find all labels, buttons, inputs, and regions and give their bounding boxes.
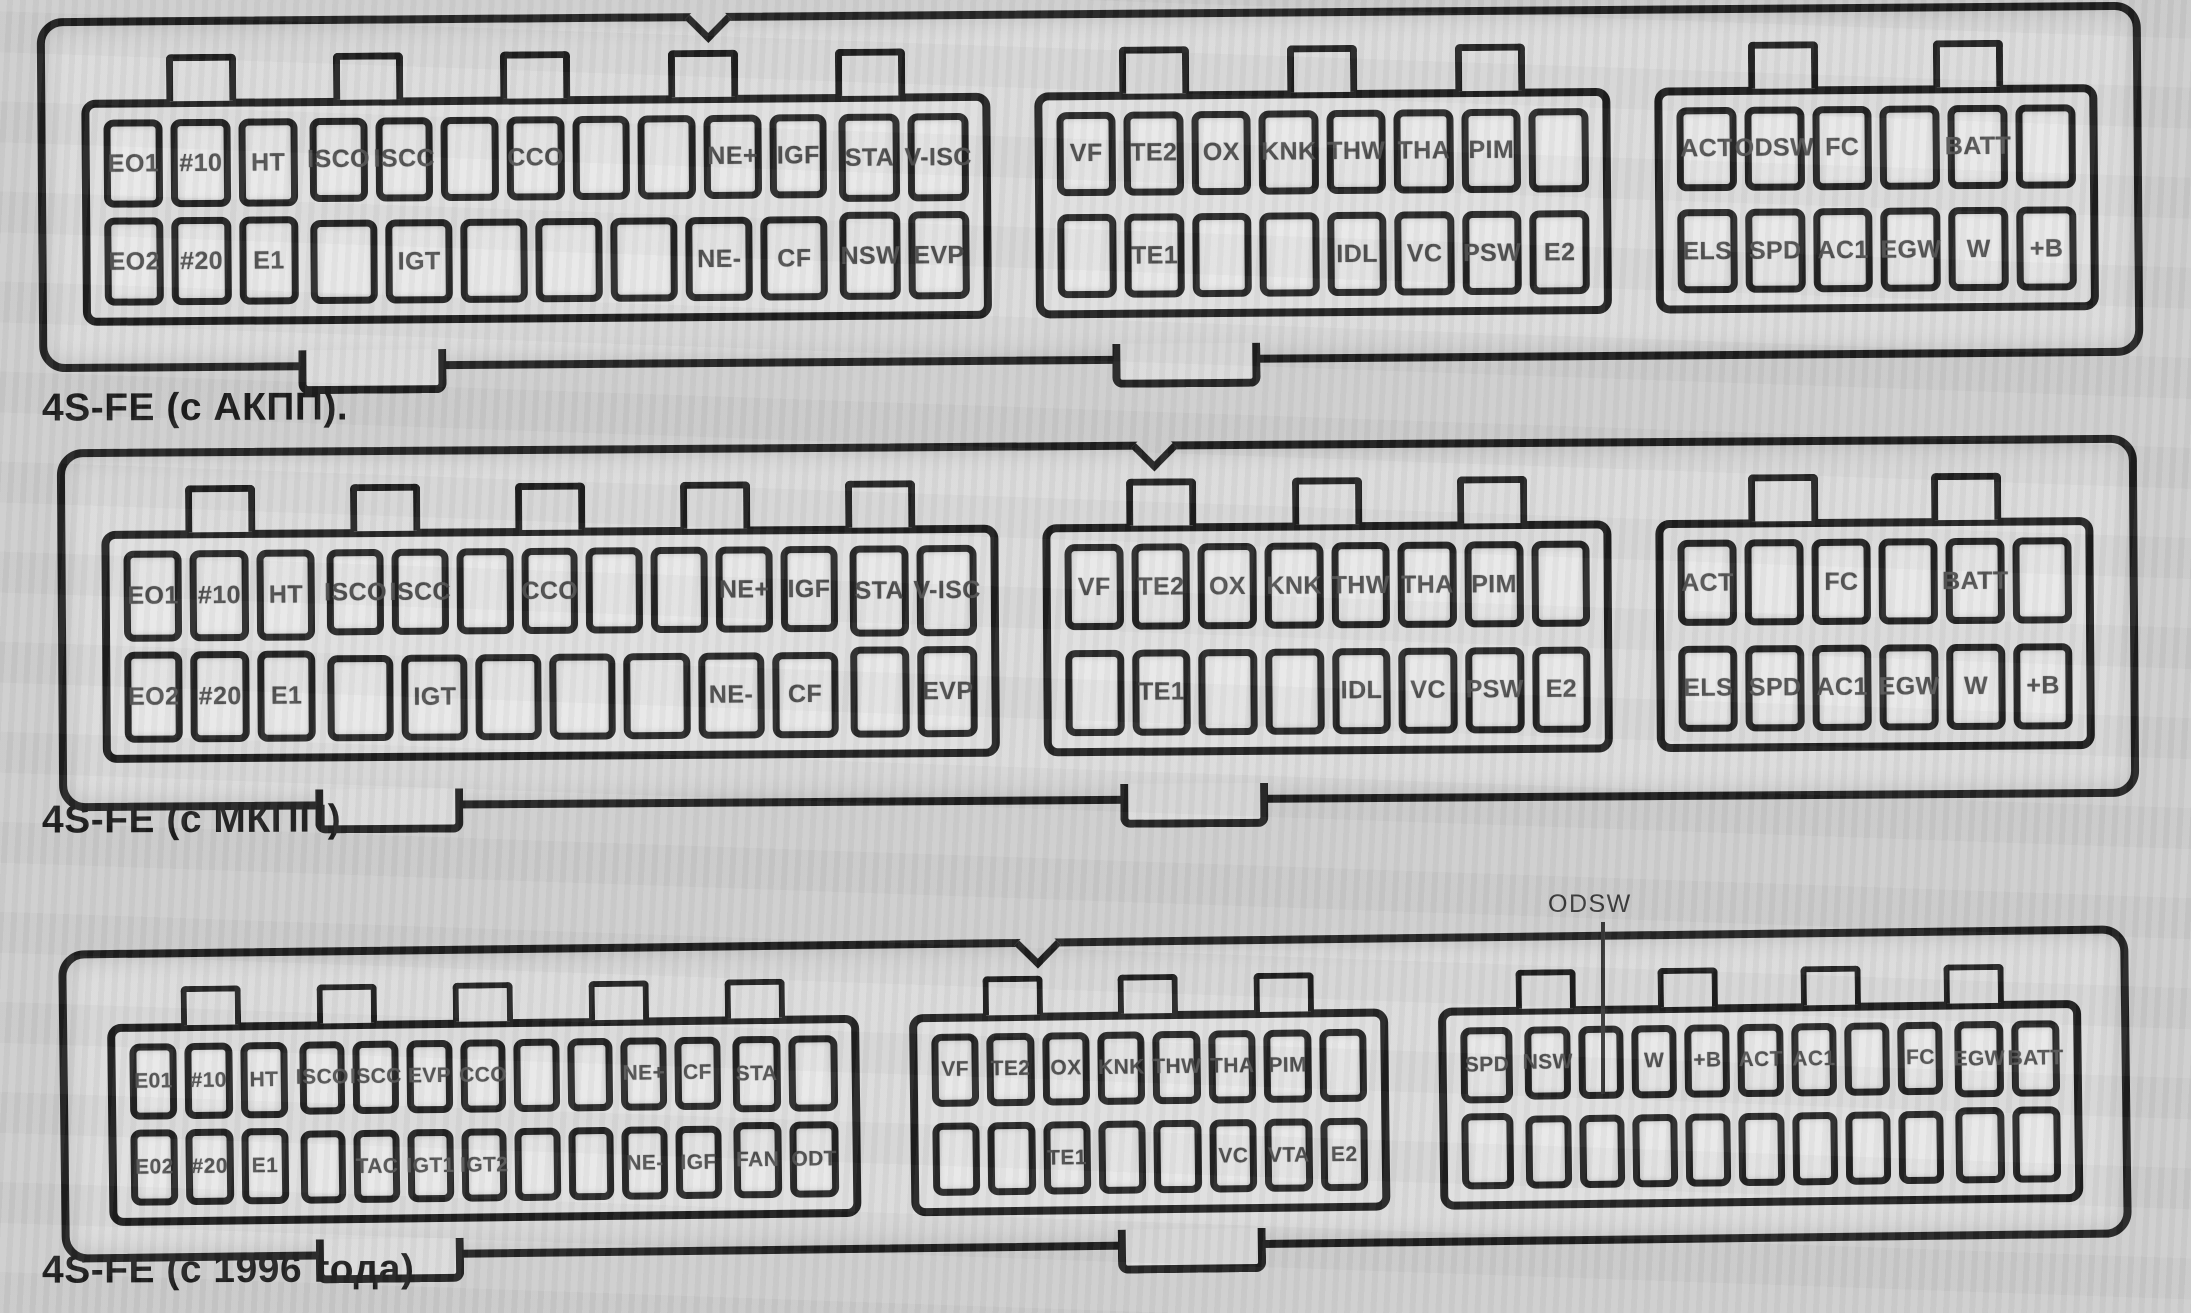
pin-label: TE2 <box>991 1057 1031 1081</box>
key-tab <box>588 980 648 1020</box>
pin-label: NSW <box>1522 1051 1572 1076</box>
pin-label: W <box>1644 1049 1665 1073</box>
pin-label: IGT1 <box>406 1153 455 1178</box>
pin-cell-ne: NE- <box>622 1126 668 1199</box>
pin-label: E2 <box>1331 1142 1358 1166</box>
pin-column: #10#20 <box>185 1043 234 1206</box>
pin-cell-blank <box>1844 1022 1890 1095</box>
pin-label: +B <box>1693 1049 1722 1073</box>
pin-row-top: VFTE2OXKNKTHWTHAPIM <box>931 1029 1367 1107</box>
pin-row-group: ISCOISCCEVPCCONE+CFTACIGT1IGT2NE-IGF <box>299 1037 722 1204</box>
pin-cell-blank <box>1154 1120 1202 1193</box>
pin-cell-ht: HT <box>240 1042 288 1119</box>
pin-label: E1 <box>252 1154 279 1178</box>
pin-cell-ac1: AC1 <box>1791 1023 1837 1096</box>
pin-label: TAC <box>355 1154 398 1179</box>
key-tab <box>317 984 377 1024</box>
pin-label: #10 <box>190 1069 227 1093</box>
pin-cell-w: W <box>1631 1025 1677 1098</box>
pin-cell-vc: VC <box>1209 1119 1257 1192</box>
pin-label: ISCC <box>350 1065 402 1090</box>
pin-cell-iscc: ISCC <box>353 1041 399 1114</box>
diagram-4sfe-1996: E01E02#10#20HTE1ISCOISCCEVPCCONE+CFTACIG… <box>0 0 2191 1313</box>
key-tab <box>1943 964 2003 1004</box>
pin-cell-evp: EVP <box>406 1040 452 1113</box>
pin-cell-igt2: IGT2 <box>461 1128 507 1201</box>
pin-cell-blank <box>1845 1111 1891 1184</box>
pin-label: EGW <box>1953 1047 2005 1072</box>
pin-cell-spd: SPD <box>1460 1027 1513 1104</box>
key-tab <box>1118 974 1178 1014</box>
pin-cell-b: +B <box>1684 1024 1730 1097</box>
key-tab <box>181 985 241 1025</box>
pin-column: ODT <box>788 1035 839 1198</box>
connector-block-middle: VFTE2OXKNKTHWTHAPIMTE1VCVTAE2 <box>909 1008 1391 1216</box>
key-tab <box>724 979 784 1019</box>
pin-label: ODT <box>791 1147 837 1172</box>
pin-cell-blank <box>1898 1111 1944 1184</box>
pin-cell-blank <box>515 1128 561 1201</box>
pin-cell-blank <box>1319 1029 1367 1102</box>
key-tab <box>1254 972 1314 1012</box>
pin-cell-e02: E02 <box>130 1129 178 1206</box>
pin-cell-tac: TAC <box>354 1130 400 1203</box>
pin-column: E01E02 <box>129 1043 178 1206</box>
pin-cell-isco: ISCO <box>299 1041 345 1114</box>
pin-column: EGW <box>1955 1021 2005 1184</box>
pin-cell-blank <box>1461 1113 1514 1190</box>
pin-cell-te2: TE2 <box>986 1033 1034 1106</box>
pin-cell-vf: VF <box>931 1033 979 1106</box>
pin-label: VF <box>941 1058 969 1082</box>
pin-column: HTE1 <box>240 1042 289 1205</box>
pin-cell-nsw: NSW <box>1525 1026 1571 1099</box>
pin-label: EVP <box>408 1064 452 1089</box>
connector-block-left: E01E02#10#20HTE1ISCOISCCEVPCCONE+CFTACIG… <box>107 1015 861 1226</box>
pin-label: IGT2 <box>460 1153 509 1178</box>
pin-row-group: NSWW+BACTAC1FC <box>1525 1022 1945 1189</box>
pin-cell-pim: PIM <box>1264 1029 1312 1102</box>
pin-cell-vta: VTA <box>1265 1118 1313 1191</box>
pin-cell-te1: TE1 <box>1043 1121 1091 1194</box>
ecu-housing: E01E02#10#20HTE1ISCOISCCEVPCCONE+CFTACIG… <box>58 925 2132 1262</box>
pin-label: FAN <box>736 1148 779 1173</box>
pin-cell-blank <box>1685 1113 1731 1186</box>
pin-cell-e2: E2 <box>1320 1118 1368 1191</box>
pin-cell-blank <box>1526 1115 1572 1188</box>
pin-row-bottom: TE1VCVTAE2 <box>932 1118 1368 1196</box>
pin-cell-10: #10 <box>185 1043 233 1120</box>
housing-foot <box>1117 1228 1266 1274</box>
pin-label: NE- <box>626 1151 664 1175</box>
pin-cell-blank <box>932 1123 980 1196</box>
pin-cell-blank <box>568 1127 614 1200</box>
pin-cell-blank <box>788 1035 838 1112</box>
pin-label: CF <box>683 1061 712 1085</box>
pin-cell-e1: E1 <box>241 1128 289 1205</box>
pin-cell-ne: NE+ <box>621 1037 667 1110</box>
pin-label: AC1 <box>1792 1047 1836 1072</box>
pin-cell-act: ACT <box>1738 1024 1784 1097</box>
pin-column: SPD <box>1460 1027 1514 1190</box>
pin-cell-blank <box>1098 1120 1146 1193</box>
pin-label: #20 <box>191 1155 228 1179</box>
diagram-caption: 4S-FE (с 1996 года). <box>42 1247 426 1292</box>
pin-label: KNK <box>1098 1056 1145 1081</box>
pin-column-group: E01E02#10#20HTE1 <box>129 1042 289 1206</box>
pin-column: STAFAN <box>732 1036 783 1199</box>
odsw-callout-line <box>1601 922 1605 1094</box>
key-tab <box>1515 969 1575 1009</box>
pin-cell-batt: BATT <box>2011 1020 2060 1097</box>
pin-label: TE1 <box>1047 1146 1087 1170</box>
pin-column-group: SPD <box>1460 1027 1514 1190</box>
pin-label: THA <box>1210 1054 1255 1079</box>
pin-label: E02 <box>135 1155 174 1179</box>
pin-cell-blank <box>2012 1106 2061 1183</box>
connector-block-right: SPDNSWW+BACTAC1FCEGWBATT <box>1438 1000 2083 1210</box>
pin-cell-blank <box>987 1122 1035 1195</box>
pin-label: HT <box>249 1068 278 1092</box>
pin-cell-igf: IGF <box>675 1126 721 1199</box>
pin-column-group: EGWBATT <box>1955 1020 2061 1183</box>
connector-key-tabs <box>143 978 823 1025</box>
pin-cell-blank <box>1632 1114 1678 1187</box>
pin-label: ISCO <box>296 1066 349 1091</box>
pin-label: PIM <box>1268 1054 1307 1078</box>
pin-label: VTA <box>1268 1143 1310 1168</box>
pin-cell-blank <box>1956 1107 2005 1184</box>
pin-cell-e01: E01 <box>129 1043 177 1120</box>
pin-cell-fan: FAN <box>733 1122 783 1199</box>
odsw-callout-label: ODSW <box>1548 890 1632 919</box>
pin-cell-blank <box>300 1130 346 1203</box>
connector-key-tabs <box>944 972 1352 1016</box>
pin-cell-ox: OX <box>1042 1032 1090 1105</box>
pin-cell-egw: EGW <box>1955 1021 2004 1098</box>
pin-cell-blank <box>1739 1113 1785 1186</box>
pin-cell-thw: THW <box>1153 1031 1201 1104</box>
pin-label: STA <box>736 1062 778 1087</box>
pin-label: BATT <box>2007 1046 2063 1071</box>
pin-label: IGF <box>680 1150 716 1174</box>
pin-label: THW <box>1152 1055 1201 1080</box>
pin-cell-igt1: IGT1 <box>407 1129 453 1202</box>
pin-label: NE+ <box>622 1062 665 1087</box>
key-tab <box>982 976 1042 1016</box>
pin-row-top: ISCOISCCEVPCCONE+CF <box>299 1037 721 1115</box>
pin-cell-tha: THA <box>1208 1030 1256 1103</box>
pin-cell-fc: FC <box>1897 1022 1943 1095</box>
key-tab <box>1658 967 1718 1007</box>
pin-row-top: NSWW+BACTAC1FC <box>1525 1022 1944 1100</box>
pin-cell-cf: CF <box>674 1037 720 1110</box>
pin-column-group: STAFANODT <box>732 1035 839 1198</box>
pin-label: ACT <box>1738 1048 1783 1073</box>
pin-label: FC <box>1906 1046 1935 1070</box>
pin-row-bottom: TACIGT1IGT2NE-IGF <box>300 1126 722 1204</box>
pin-cell-blank <box>1579 1115 1625 1188</box>
pin-cell-knk: KNK <box>1097 1031 1145 1104</box>
pin-cell-cco: CCO <box>460 1039 506 1112</box>
pin-label: SPD <box>1465 1053 1510 1078</box>
pin-cell-blank <box>1792 1112 1838 1185</box>
housing-notch <box>1014 922 1061 969</box>
pin-label: E01 <box>134 1069 173 1093</box>
pin-cell-blank <box>567 1038 613 1111</box>
connector-key-tabs <box>1474 963 2045 1009</box>
pin-row-bottom <box>1526 1111 1945 1189</box>
pin-column: BATT <box>2011 1020 2061 1183</box>
key-tab <box>1800 966 1860 1006</box>
pin-cell-20: #20 <box>186 1129 234 1206</box>
pin-label: OX <box>1050 1057 1081 1081</box>
pin-cell-sta: STA <box>732 1036 782 1113</box>
pin-row-group: VFTE2OXKNKTHWTHAPIMTE1VCVTAE2 <box>931 1029 1368 1196</box>
pin-label: CCO <box>459 1064 507 1089</box>
pin-label: VC <box>1218 1144 1248 1168</box>
key-tab <box>452 982 512 1022</box>
pin-cell-odt: ODT <box>789 1121 839 1198</box>
pin-cell-blank <box>513 1039 559 1112</box>
